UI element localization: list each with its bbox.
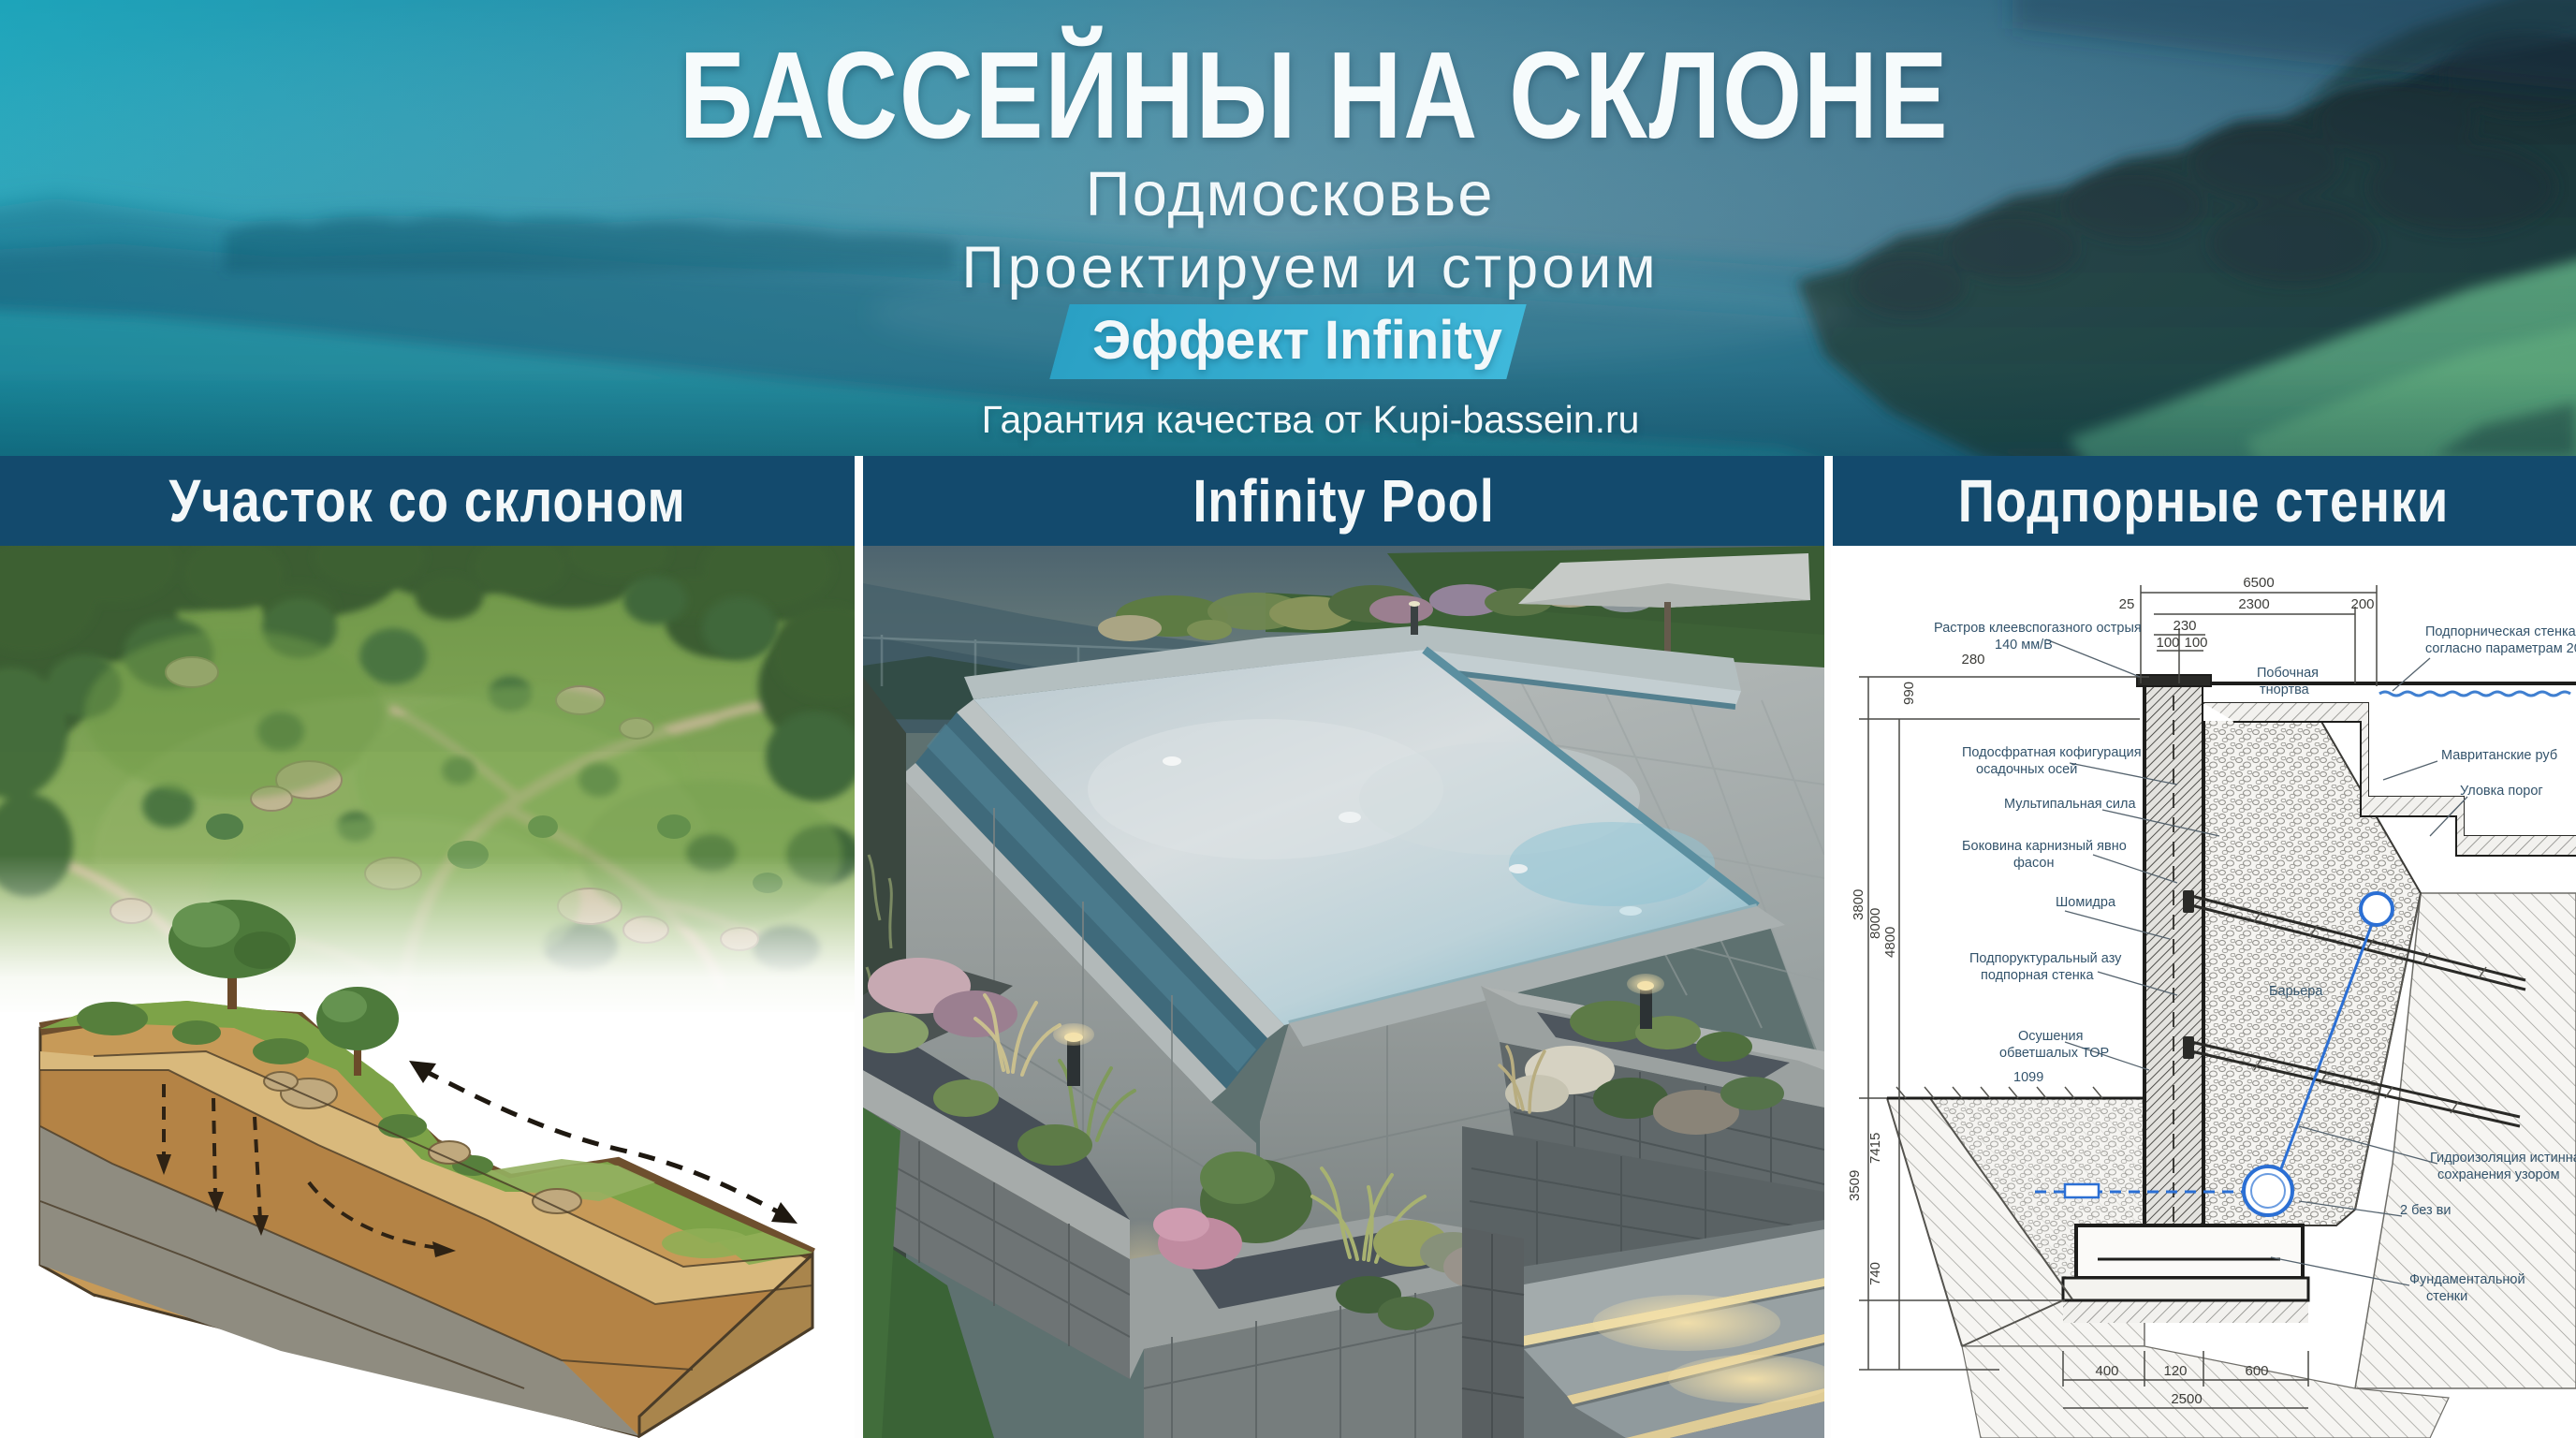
svg-text:Подосфратная кофигурация: Подосфратная кофигурация	[1962, 745, 2142, 760]
svg-text:Побочная: Побочная	[2257, 666, 2319, 681]
svg-text:Растров клеевспогазного острыя: Растров клеевспогазного острыя	[1934, 621, 2142, 636]
svg-text:Подпоруктуральный азу: Подпоруктуральный азу	[1969, 951, 2122, 966]
svg-text:согласно параметрам 2000: согласно параметрам 2000	[2425, 641, 2576, 656]
svg-text:Фундаментальной: Фундаментальной	[2409, 1272, 2525, 1287]
svg-text:100: 100	[2156, 635, 2179, 651]
svg-text:3509: 3509	[1847, 1170, 1863, 1201]
svg-text:100: 100	[2184, 635, 2207, 651]
svg-text:230: 230	[2173, 618, 2196, 634]
svg-text:Мультипальная сила: Мультипальная сила	[2004, 797, 2136, 812]
svg-text:2 без ви: 2 без ви	[2400, 1203, 2451, 1218]
svg-text:Гидроизоляция истинная: Гидроизоляция истинная	[2430, 1151, 2576, 1166]
svg-text:1099: 1099	[2013, 1070, 2043, 1085]
svg-text:Уловка порог: Уловка порог	[2460, 784, 2543, 799]
svg-text:7415: 7415	[1867, 1133, 1883, 1164]
svg-text:6500: 6500	[2243, 575, 2274, 591]
svg-text:стенки: стенки	[2426, 1289, 2467, 1304]
svg-text:3800: 3800	[1851, 889, 1866, 920]
svg-text:740: 740	[1867, 1262, 1883, 1285]
svg-text:тнортва: тнортва	[2260, 682, 2310, 697]
svg-text:120: 120	[2163, 1363, 2187, 1379]
svg-text:140 мм/В: 140 мм/В	[1995, 638, 2053, 653]
svg-text:8000: 8000	[1867, 908, 1883, 939]
svg-text:280: 280	[1961, 652, 1984, 668]
svg-text:сохранения узором: сохранения узором	[2437, 1167, 2560, 1182]
svg-text:Подпорническая стенка: Подпорническая стенка	[2425, 624, 2576, 639]
svg-text:2500: 2500	[2171, 1391, 2202, 1407]
svg-text:Боковина карнизный явно: Боковина карнизный явно	[1962, 839, 2127, 854]
svg-text:фасон: фасон	[2013, 856, 2054, 871]
svg-text:обветшалых ТОР: обветшалых ТОР	[1999, 1046, 2109, 1061]
svg-text:4800: 4800	[1882, 927, 1898, 958]
svg-text:Барьера: Барьера	[2269, 984, 2323, 999]
svg-text:Шомидра: Шомидра	[2056, 895, 2116, 910]
svg-text:600: 600	[2245, 1363, 2268, 1379]
svg-text:Мавританские руб: Мавританские руб	[2441, 748, 2557, 763]
svg-text:25: 25	[2119, 596, 2135, 612]
svg-text:200: 200	[2350, 596, 2374, 612]
svg-text:2300: 2300	[2238, 596, 2269, 612]
svg-text:400: 400	[2095, 1363, 2118, 1379]
svg-text:990: 990	[1901, 682, 1917, 705]
svg-text:подпорная стенка: подпорная стенка	[1981, 968, 2094, 983]
svg-text:осадочных осей: осадочных осей	[1976, 762, 2077, 777]
svg-text:Осушения: Осушения	[2018, 1029, 2083, 1044]
